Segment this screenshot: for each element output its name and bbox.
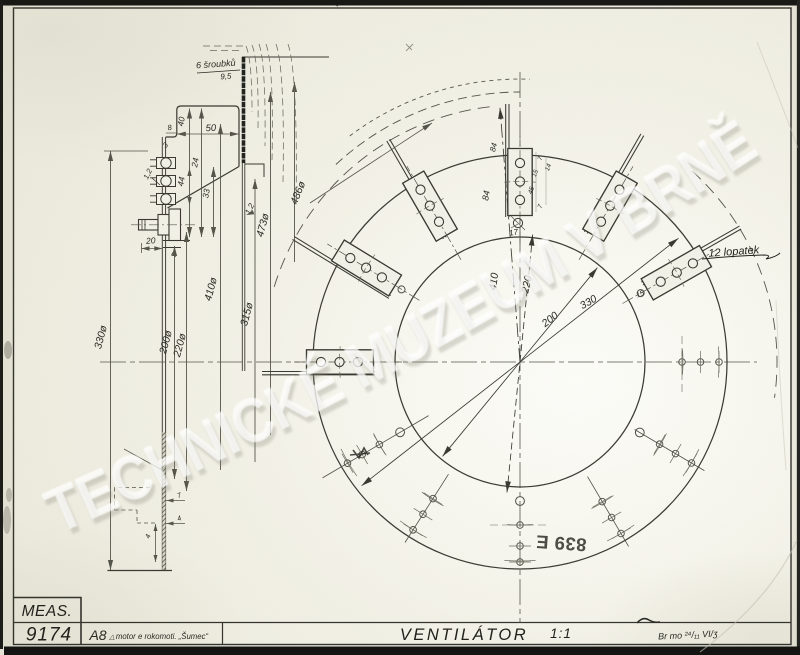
svg-text:△: △ xyxy=(108,634,115,641)
svg-text:VENTILÁTOR: VENTILÁTOR xyxy=(400,625,528,644)
svg-text:84: 84 xyxy=(480,190,492,202)
svg-text:40: 40 xyxy=(175,116,187,127)
svg-text:1:1: 1:1 xyxy=(550,626,572,641)
svg-text:24: 24 xyxy=(189,157,201,169)
svg-text:839 E: 839 E xyxy=(535,531,587,555)
svg-text:20: 20 xyxy=(145,235,157,246)
svg-text:motor e rokomoti. „Šumec“: motor e rokomoti. „Šumec“ xyxy=(116,632,209,641)
svg-text:50: 50 xyxy=(205,123,217,135)
svg-text:44: 44 xyxy=(175,176,187,187)
svg-text:9,5: 9,5 xyxy=(220,72,232,82)
svg-text:33: 33 xyxy=(200,188,212,199)
svg-text:MEAS.: MEAS. xyxy=(22,603,73,620)
svg-text:9174: 9174 xyxy=(26,625,72,646)
svg-text:A8: A8 xyxy=(88,627,106,643)
